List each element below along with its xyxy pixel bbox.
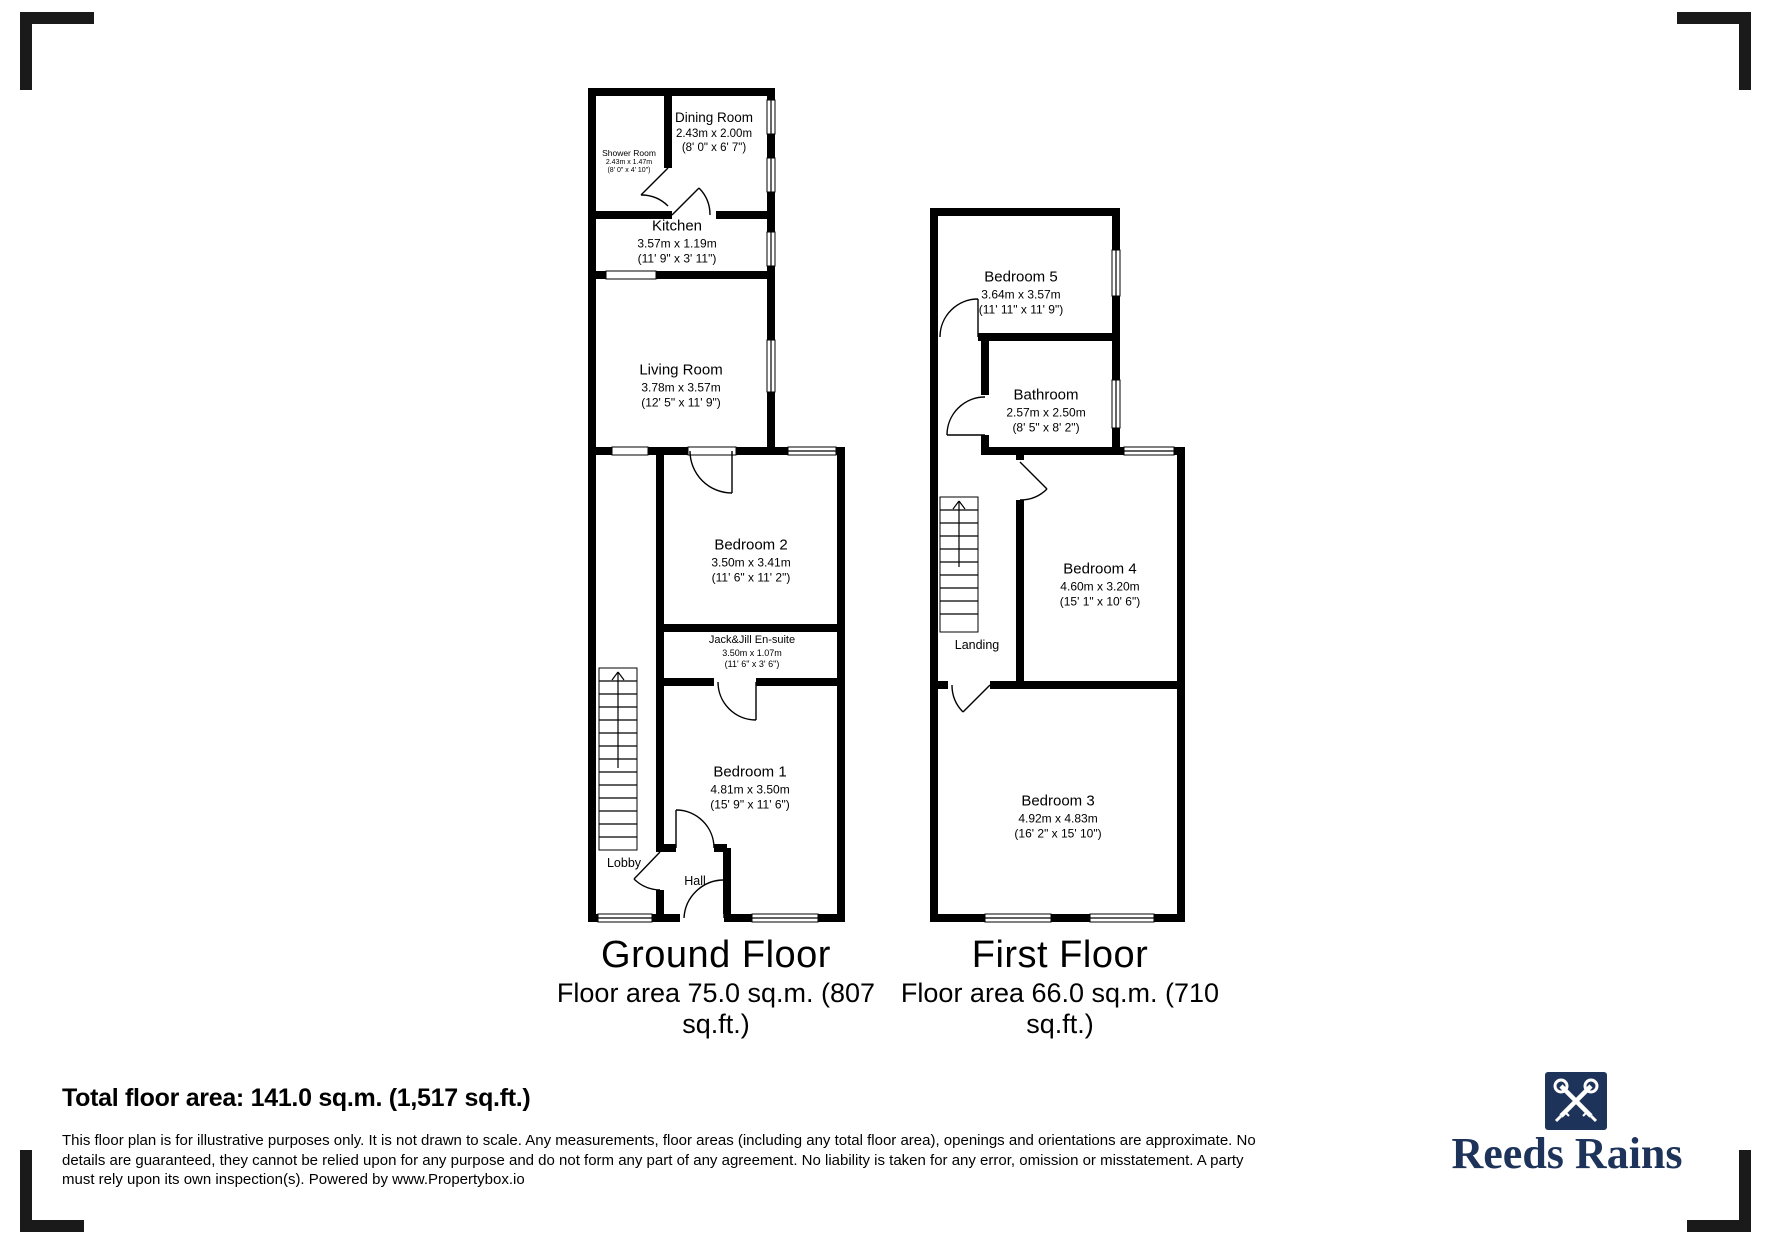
window	[985, 914, 1051, 922]
first-floor-caption: First Floor Floor area 66.0 sq.m. (710 s…	[901, 932, 1219, 1040]
room-name: Dining Room	[675, 110, 753, 127]
room-dims-imperial: (11' 11" x 11' 9")	[979, 302, 1063, 317]
window	[788, 447, 836, 455]
room-dims-imperial: (11' 9" x 3' 11")	[637, 251, 716, 266]
room-dims-metric: 2.43m x 2.00m	[675, 127, 753, 141]
window	[1124, 447, 1174, 455]
first-floor-title: First Floor	[901, 932, 1219, 978]
room-name: Bedroom 2	[711, 537, 790, 556]
disclaimer-line: This floor plan is for illustrative purp…	[62, 1131, 1392, 1151]
room-dims-metric: 3.57m x 1.19m	[637, 236, 716, 251]
ground-floor-caption: Ground Floor Floor area 75.0 sq.m. (807 …	[557, 932, 875, 1040]
area-line: sq.ft.)	[901, 1009, 1219, 1040]
window	[1112, 380, 1120, 428]
reeds-rains-emblem	[1545, 1072, 1607, 1130]
room-label-living-room: Living Room 3.78m x 3.57m (12' 5" x 11' …	[639, 362, 722, 411]
room-dims-imperial: (8' 0" x 4' 10")	[602, 167, 656, 176]
ground-floor-area: Floor area 75.0 sq.m. (807 sq.ft.)	[557, 978, 875, 1040]
area-line: Floor area 75.0 sq.m. (807	[557, 978, 875, 1009]
room-dims-metric: 4.81m x 3.50m	[710, 782, 790, 797]
ground-staircase	[599, 668, 637, 850]
room-name: Living Room	[639, 362, 722, 381]
room-dims-imperial: (12' 5" x 11' 9")	[639, 395, 722, 410]
room-dims-imperial: (16' 2" x 15' 10")	[1014, 826, 1101, 841]
window	[1090, 914, 1154, 922]
room-name: Kitchen	[637, 218, 716, 237]
room-label-hall: Hall	[684, 874, 706, 890]
disclaimer-line: must rely upon its own inspection(s). Po…	[62, 1170, 1392, 1190]
room-label-shower-room: Shower Room 2.43m x 1.47m (8' 0" x 4' 10…	[602, 148, 656, 176]
total-floor-area: Total floor area: 141.0 sq.m. (1,517 sq.…	[62, 1084, 530, 1113]
area-line: sq.ft.)	[557, 1009, 875, 1040]
window	[767, 100, 775, 134]
room-name: Bedroom 5	[979, 269, 1063, 288]
room-label-bathroom: Bathroom 2.57m x 2.50m (8' 5" x 8' 2")	[1006, 387, 1085, 436]
room-name: Bedroom 4	[1060, 561, 1140, 580]
area-line: Floor area 66.0 sq.m. (710	[901, 978, 1219, 1009]
first-staircase	[940, 497, 978, 632]
room-dims-metric: 3.50m x 1.07m	[709, 648, 795, 659]
room-dims-metric: 3.50m x 3.41m	[711, 555, 790, 570]
window	[598, 914, 652, 922]
window	[767, 232, 775, 266]
room-name: Bedroom 1	[710, 764, 790, 783]
first-floor-area: Floor area 66.0 sq.m. (710 sq.ft.)	[901, 978, 1219, 1040]
floorplan-page: Shower Room 2.43m x 1.47m (8' 0" x 4' 10…	[0, 0, 1771, 1239]
room-dims-metric: 3.64m x 3.57m	[979, 287, 1063, 302]
room-label-ensuite: Jack&Jill En-suite 3.50m x 1.07m (11' 6"…	[709, 634, 795, 670]
room-name: Jack&Jill En-suite	[709, 634, 795, 648]
room-dims-imperial: (11' 6" x 11' 2")	[711, 570, 790, 585]
room-label-bedroom-2: Bedroom 2 3.50m x 3.41m (11' 6" x 11' 2"…	[711, 537, 790, 586]
window	[752, 914, 818, 922]
room-label-bedroom-1: Bedroom 1 4.81m x 3.50m (15' 9" x 11' 6"…	[710, 764, 790, 813]
reeds-rains-logo-text: Reeds Rains	[1451, 1128, 1682, 1179]
disclaimer-text: This floor plan is for illustrative purp…	[62, 1131, 1392, 1190]
floorplan-drawing	[0, 0, 1771, 1239]
room-dims-imperial: (11' 6" x 3' 6")	[709, 659, 795, 670]
disclaimer-line: details are guaranteed, they cannot be r…	[62, 1151, 1392, 1171]
room-label-dining-room: Dining Room 2.43m x 2.00m (8' 0" x 6' 7"…	[675, 110, 753, 156]
room-dims-metric: 3.78m x 3.57m	[639, 380, 722, 395]
window	[767, 158, 775, 192]
ground-floor-title: Ground Floor	[557, 932, 875, 978]
room-dims-metric: 2.43m x 1.47m	[602, 159, 656, 168]
room-label-bedroom-5: Bedroom 5 3.64m x 3.57m (11' 11" x 11' 9…	[979, 269, 1063, 318]
room-dims-metric: 4.60m x 3.20m	[1060, 579, 1140, 594]
room-label-bedroom-3: Bedroom 3 4.92m x 4.83m (16' 2" x 15' 10…	[1014, 793, 1101, 842]
room-name: Bathroom	[1006, 387, 1085, 406]
room-label-landing: Landing	[955, 638, 1000, 654]
room-label-lobby: Lobby	[607, 856, 641, 872]
room-label-bedroom-4: Bedroom 4 4.60m x 3.20m (15' 1" x 10' 6"…	[1060, 561, 1140, 610]
window	[767, 340, 775, 392]
room-name: Bedroom 3	[1014, 793, 1101, 812]
room-name: Shower Room	[602, 148, 656, 159]
room-dims-imperial: (15' 9" x 11' 6")	[710, 797, 790, 812]
room-dims-imperial: (8' 0" x 6' 7")	[675, 141, 753, 155]
room-dims-imperial: (8' 5" x 8' 2")	[1006, 420, 1085, 435]
corner-marks	[20, 12, 1751, 1232]
room-dims-metric: 2.57m x 2.50m	[1006, 405, 1085, 420]
room-dims-metric: 4.92m x 4.83m	[1014, 811, 1101, 826]
room-label-kitchen: Kitchen 3.57m x 1.19m (11' 9" x 3' 11")	[637, 218, 716, 267]
room-dims-imperial: (15' 1" x 10' 6")	[1060, 594, 1140, 609]
window	[1112, 250, 1120, 296]
